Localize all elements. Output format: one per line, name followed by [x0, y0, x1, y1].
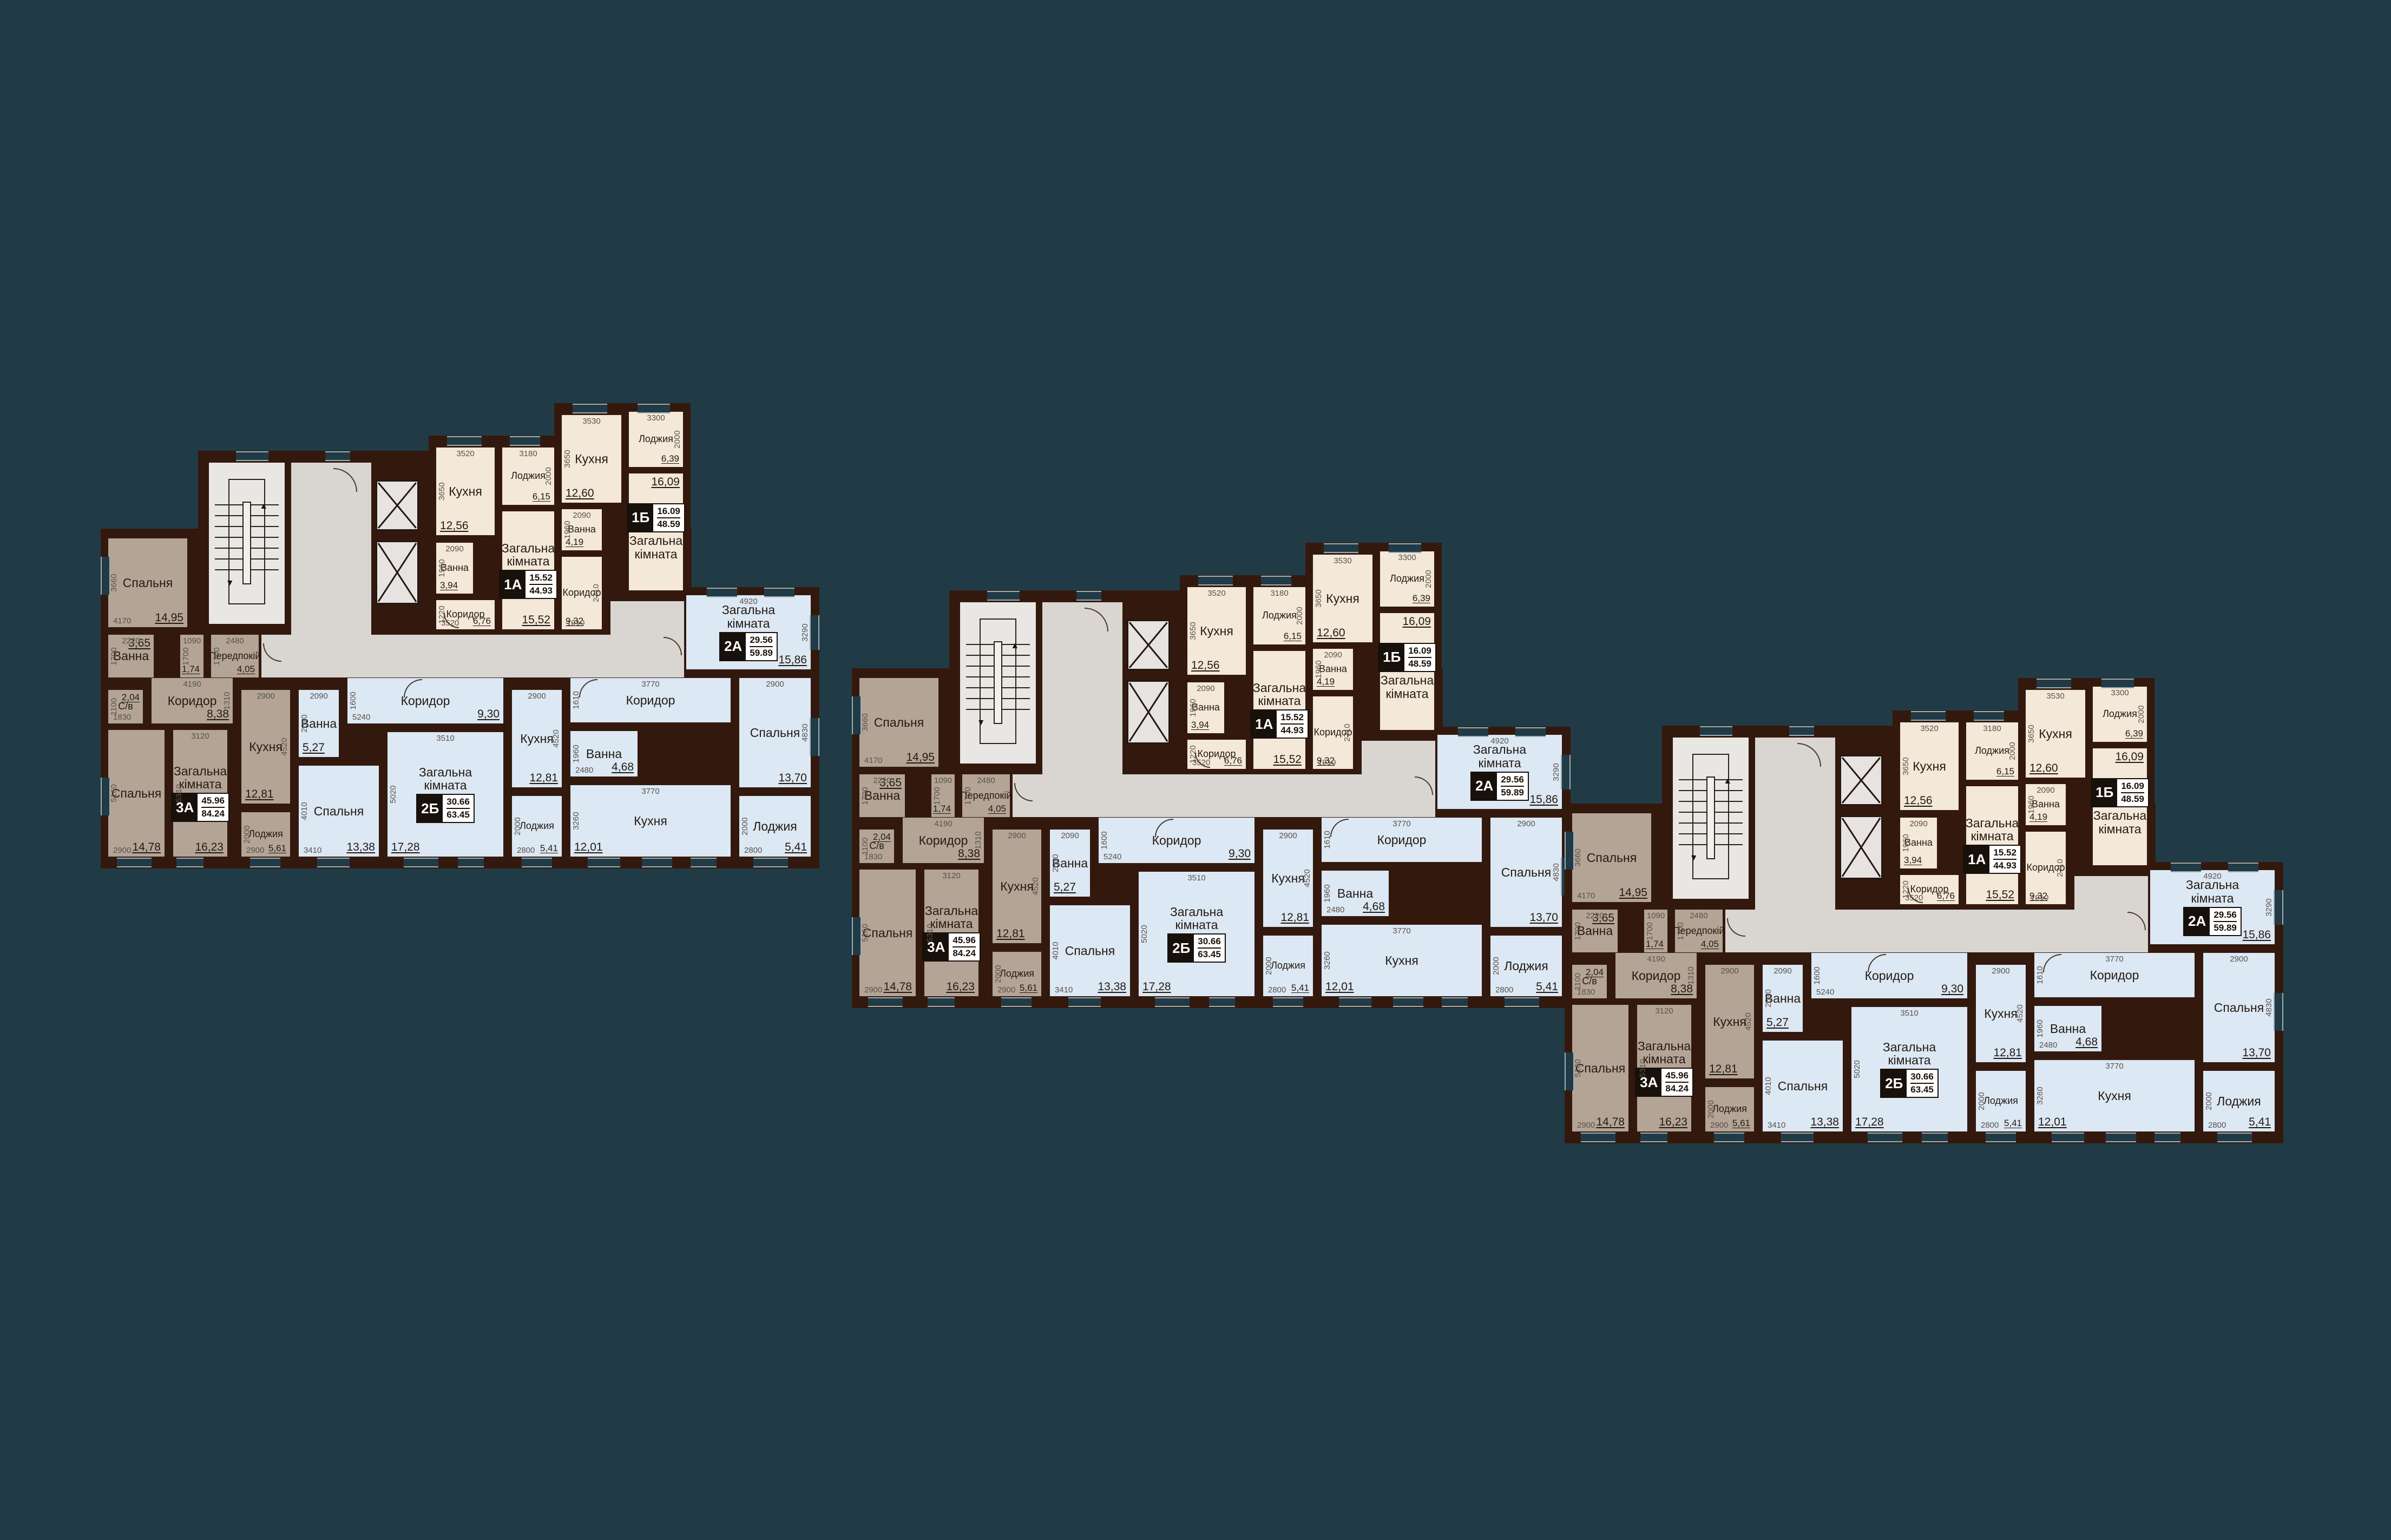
room-apt2b-living-room: Загальна кімната2Б30.6663.4517,283510502…: [387, 732, 503, 857]
room-label: Лоджия: [1000, 969, 1034, 979]
room-apt3a-kitchen: Кухня12,8129004520: [1705, 965, 1754, 1078]
room-apt3a-loggia: Лоджия5,6120002900: [1705, 1087, 1754, 1131]
dimension-label: 3770: [2105, 955, 2123, 963]
dimension-label: 1700: [110, 647, 118, 665]
room-apt1b-living-room: 1Б16.0948.59Загальна кімната16,09: [1380, 613, 1434, 730]
total-area-value: 59.89: [2213, 922, 2237, 934]
dimension-label: 5310: [926, 924, 934, 942]
room-elevator-shaft-1: [1840, 755, 1883, 806]
dimension-label: 2000: [544, 467, 553, 485]
room-apt2a-loggia: Лоджия5,4120002800: [2203, 1071, 2275, 1131]
room-label: Лоджия: [511, 471, 546, 481]
room-apt3a-bedroom-2: Спальня14,7851602900: [1572, 1005, 1628, 1131]
dimension-label: 3650: [438, 482, 446, 500]
window: [1324, 543, 1358, 553]
dimension-label: 2900: [246, 846, 264, 854]
dimension-label: 2900: [766, 680, 784, 688]
dimension-label: 1910: [1318, 759, 1336, 767]
apartment-type: 1Б: [2092, 779, 2117, 806]
room-label: Кухня: [1000, 880, 1034, 893]
room-area-value: 13,38: [1098, 980, 1126, 993]
apartment-badge-2А: 2А29.5659.89: [2183, 907, 2242, 936]
window: [707, 588, 737, 597]
window: [1581, 1133, 1615, 1142]
total-area-value: 44.93: [1993, 860, 2016, 872]
dimension-label: 2900: [2230, 955, 2248, 963]
dimension-label: 1960: [572, 745, 580, 762]
room-label: Кухня: [1200, 624, 1233, 638]
room-area-value: 5,41: [540, 843, 558, 854]
room-apt1b-kitchen: Кухня12,6035303650: [1313, 555, 1372, 642]
room-label: Лоджия: [1983, 1096, 2018, 1106]
room-label: Коридор: [168, 694, 217, 708]
room-label: Ванна: [586, 747, 622, 761]
room-area-value: 5,41: [1536, 980, 1558, 993]
window: [325, 451, 350, 461]
dimension-label: 5240: [352, 713, 370, 721]
dimension-label: 3120: [1655, 1007, 1673, 1015]
apartment-areas: 45.9684.24: [198, 794, 228, 821]
dimension-label: 3520: [456, 450, 474, 458]
dimension-label: 2610: [1764, 989, 1772, 1007]
dimension-label: 2710: [1343, 723, 1351, 741]
room-area-value: 13,70: [778, 772, 807, 785]
room-apt2a-bathroom: Ванна4,6819602480: [570, 731, 638, 776]
room-area-value: 5,61: [1020, 983, 1037, 993]
dimension-label: 2900: [1517, 820, 1535, 828]
room-label: Кухня: [1271, 872, 1305, 885]
room-apt3a-wc: С/в2,0411001830: [1572, 965, 1607, 998]
dimension-label: 3650: [1902, 757, 1910, 775]
dimension-label: 2900: [1710, 1121, 1728, 1129]
apartment-badge-2Б: 2Б30.6663.45: [416, 794, 475, 823]
room-area-value: 13,70: [2242, 1047, 2271, 1059]
room-area-value: 5,27: [1766, 1016, 1789, 1029]
room-apt2a-living-room: Загальна кімната2А29.5659.8915,864920329…: [1437, 735, 1562, 809]
window: [1911, 711, 1946, 721]
window: [2171, 863, 2201, 872]
room-label: Загальна кімната: [1381, 674, 1434, 701]
dimension-label: 2090: [1324, 651, 1342, 659]
dimension-label: 4520: [280, 738, 288, 755]
living-area-value: 16.09: [657, 505, 680, 518]
room-area-value: 14,95: [906, 751, 935, 764]
window: [522, 858, 552, 867]
total-area-value: 44.93: [529, 585, 553, 597]
room-apt3a-living-room: Загальна кімната3А45.9684.2416,233120531…: [173, 730, 227, 857]
apartment-areas: 16.0948.59: [2117, 779, 2148, 806]
dimension-label: 5310: [175, 784, 183, 802]
dimension-label: 1910: [567, 619, 584, 627]
living-area-value: 29.56: [750, 634, 773, 647]
room-area-value: 13,38: [1810, 1116, 1839, 1129]
dimension-label: 3510: [1900, 1009, 1918, 1017]
dimension-label: 3660: [110, 574, 118, 591]
window: [764, 588, 794, 597]
room-apt1b-kitchen: Кухня12,6035303650: [562, 415, 621, 503]
window: [510, 436, 540, 446]
dimension-label: 2480: [575, 766, 593, 774]
dimension-label: 3650: [563, 450, 572, 468]
window: [2217, 1133, 2252, 1142]
room-label: Ванна: [1337, 887, 1373, 900]
apartment-type: 1Б: [1379, 644, 1404, 671]
dimension-label: 5310: [1639, 1059, 1647, 1077]
dimension-label: 3180: [1983, 725, 2001, 733]
room-apt1a-kitchen: Кухня12,5635203650: [1900, 722, 1959, 810]
dimension-label: 4520: [552, 729, 560, 747]
total-area-value: 63.45: [1198, 949, 1221, 960]
dimension-label: 3410: [304, 846, 321, 854]
room-label: Кухня: [520, 732, 554, 746]
room-area-value: 13,38: [346, 841, 375, 854]
total-area-value: 44.93: [1280, 725, 1304, 736]
room-apt3a-corridor: Коридор8,3841901310: [152, 678, 233, 723]
room-area-value: 16,09: [2115, 751, 2144, 764]
room-apt1a-bathroom: Ванна3,9420901960: [1187, 682, 1224, 733]
dimension-label: 2000: [1707, 1100, 1715, 1118]
window: [101, 557, 110, 595]
apartment-type: 2Б: [1881, 1070, 1907, 1097]
room-label: Загальна кімната: [1170, 905, 1223, 932]
room-area-value: 15,52: [1273, 753, 1302, 766]
dimension-label: 2480: [226, 637, 244, 645]
room-label: Спальня: [863, 926, 912, 940]
room-label: Кухня: [1713, 1015, 1746, 1029]
room-apt2a-loggia: Лоджия5,4120002800: [1490, 936, 1562, 996]
apartment-areas: 29.5659.89: [2210, 908, 2241, 935]
room-apt2b-bathroom: Ванна5,2720902610: [1763, 965, 1803, 1032]
room-label: Загальна кімната: [2093, 809, 2146, 836]
dimension-label: 3180: [519, 450, 537, 458]
window: [1209, 997, 1235, 1007]
room-area-value: 12,81: [529, 772, 558, 785]
dimension-label: 2900: [257, 692, 274, 700]
dimension-label: 2900: [1992, 967, 2009, 975]
dimension-label: 2900: [1279, 832, 1297, 840]
window: [1565, 832, 1574, 870]
dimension-label: 3650: [1189, 622, 1197, 640]
dimension-label: 2090: [2037, 786, 2054, 794]
room-apt1b-bathroom: Ванна4,1920901960: [562, 509, 602, 550]
total-area-value: 84.24: [953, 947, 976, 959]
window: [1273, 997, 1303, 1007]
room-label: Лоджия: [639, 434, 673, 444]
room-label: Спальня: [1065, 944, 1115, 958]
dimension-label: 3300: [647, 414, 665, 422]
room-apt3a-loggia: Лоджия5,6120002900: [993, 952, 1041, 996]
window: [117, 858, 152, 867]
room-label: Кухня: [575, 452, 608, 466]
window: [691, 858, 717, 867]
dimension-label: 1960: [1189, 699, 1197, 716]
living-area-value: 16.09: [2121, 780, 2144, 793]
room-apt2b-kitchen: Кухня12,8129004520: [1976, 965, 2026, 1062]
room-area-value: 16,23: [195, 841, 224, 854]
room-apt2b-loggia: Лоджия5,4120002800: [1976, 1071, 2026, 1131]
dimension-label: 4920: [1490, 737, 1508, 745]
window: [1986, 1133, 2016, 1142]
window: [1393, 997, 1423, 1007]
apartment-badge-2Б: 2Б30.6663.45: [1167, 933, 1226, 963]
room-apt1a-living-room: Загальна кімната1А15.5244.9315,52: [1253, 651, 1305, 769]
room-label: С/в: [869, 841, 884, 851]
dimension-label: 3290: [801, 623, 809, 641]
dimension-label: 1960: [1315, 660, 1323, 678]
total-area-value: 48.59: [657, 518, 680, 530]
room-apt3a-living-room: Загальна кімната3А45.9684.2416,233120531…: [924, 870, 978, 996]
dimension-label: 5160: [110, 784, 118, 802]
room-area-value: 12,56: [1904, 794, 1933, 807]
dimension-label: 3530: [2046, 692, 2064, 700]
window: [2037, 679, 2071, 688]
dimension-label: 2480: [1326, 906, 1344, 914]
room-label: Спальня: [1501, 866, 1551, 879]
dimension-label: 3290: [2265, 898, 2273, 916]
dimension-label: 1700: [182, 647, 190, 665]
dimension-label: 5020: [1853, 1060, 1861, 1078]
dimension-label: 3260: [572, 812, 580, 830]
room-apt1b-corridor: Коридор9,3227101910: [2026, 832, 2066, 904]
room-apt2a-kitchen: Кухня12,0137703260: [570, 785, 731, 857]
apartment-badge-2А: 2А29.5659.89: [719, 632, 778, 661]
room-area-value: 15,52: [1986, 889, 2014, 901]
dimension-label: 2000: [1424, 570, 1433, 588]
dimension-label: 4520: [1744, 1012, 1752, 1030]
room-apt2b-bedroom: Спальня13,3840103410: [1050, 905, 1130, 996]
room-label: Лоджия: [1390, 574, 1424, 584]
room-label: Кухня: [1326, 592, 1359, 606]
room-area-value: 15,86: [778, 654, 807, 667]
window: [852, 696, 862, 734]
dimension-label: 3770: [641, 680, 659, 688]
room-label: Спальня: [2214, 1001, 2264, 1015]
window: [2052, 1133, 2084, 1142]
dimension-label: 2000: [2137, 705, 2145, 723]
dimension-label: 2220: [1586, 912, 1604, 920]
room-area-value: 5,61: [268, 843, 286, 854]
room-area-value: 16,09: [651, 476, 680, 489]
room-label: Коридор: [919, 834, 968, 847]
room-apt2b-corridor: Коридор9,3016005240: [1811, 953, 1967, 998]
window: [404, 858, 438, 867]
room-label: Кухня: [249, 740, 283, 754]
apartment-type: 1А: [500, 571, 526, 598]
dimension-label: 3180: [1270, 589, 1288, 597]
room-label: Спальня: [314, 805, 364, 818]
room-common-corridor-east: [610, 601, 684, 635]
room-apt1a-kitchen: Кухня12,5635203650: [1187, 587, 1246, 675]
dimension-label: 2900: [528, 692, 546, 700]
room-area-value: 6,15: [533, 491, 550, 502]
room-apt3a-bathroom: Ванна3,6522201700: [1572, 910, 1618, 952]
living-area-value: 15.52: [1993, 847, 2016, 860]
room-apt3a-bathroom: Ванна3,6522201700: [108, 635, 154, 677]
room-apt1a-kitchen: Кухня12,5635203650: [436, 447, 495, 535]
building-section-1: ▲▼Спальня14,9536604170Ванна3,65222017001…: [101, 399, 819, 880]
dimension-label: 3660: [1574, 848, 1582, 866]
room-area-value: 12,01: [574, 841, 603, 854]
room-area-value: 12,56: [440, 519, 469, 532]
apartment-areas: 45.9684.24: [1661, 1069, 1692, 1096]
room-area-value: 6,76: [1224, 755, 1242, 766]
room-apt1b-loggia: Лоджия6,3933002000: [2093, 687, 2147, 742]
room-apt2b-loggia: Лоджия5,4120002800: [512, 796, 562, 857]
room-area-value: 3,94: [1904, 855, 1922, 866]
room-label: Спальня: [750, 726, 800, 740]
window: [642, 858, 672, 867]
room-area-value: 6,76: [1937, 891, 1955, 901]
total-area-value: 84.24: [1665, 1083, 1689, 1095]
window: [1001, 997, 1032, 1007]
dimension-label: 1090: [183, 637, 201, 645]
room-apt3a-bedroom-1: Спальня14,9536604170: [1572, 813, 1651, 902]
room-area-value: 15,86: [1529, 793, 1558, 806]
dimension-label: 1830: [864, 853, 882, 861]
room-stairwell: ▲▼: [960, 602, 1036, 764]
room-area-value: 12,60: [566, 487, 594, 500]
dimension-label: 3530: [582, 417, 600, 425]
room-area-value: 14,78: [1596, 1116, 1625, 1129]
room-apt2b-loggia: Лоджия5,4120002800: [1263, 936, 1313, 996]
dimension-label: 2800: [1981, 1121, 1999, 1129]
room-apt2a-kitchen: Кухня12,0137703260: [2034, 1060, 2195, 1131]
dimension-label: 3530: [1334, 557, 1351, 565]
dimension-label: 2610: [300, 714, 308, 732]
room-area-value: 6,39: [661, 453, 679, 464]
room-label: Лоджия: [2103, 709, 2137, 719]
total-area-value: 48.59: [1408, 658, 1431, 670]
dimension-label: 3650: [1315, 589, 1323, 607]
dimension-label: 3260: [2036, 1087, 2044, 1104]
room-apt1b-loggia: Лоджия6,3933002000: [629, 412, 683, 467]
dimension-label: 5160: [861, 924, 869, 942]
room-elevator-shaft-1: [376, 480, 419, 531]
apartment-type: 2Б: [1168, 934, 1194, 962]
window: [2228, 863, 2258, 872]
window: [2274, 890, 2283, 925]
dimension-label: 2090: [445, 545, 463, 553]
living-area-value: 45.96: [953, 934, 976, 947]
room-area-value: 16,23: [1659, 1116, 1687, 1129]
total-area-value: 59.89: [1501, 787, 1524, 799]
window: [1198, 576, 1233, 585]
room-area-value: 12,60: [2029, 762, 2058, 775]
room-area-value: 3,94: [1191, 720, 1209, 730]
dimension-label: 3260: [1323, 951, 1331, 969]
room-label: Лоджия: [520, 821, 554, 831]
window: [753, 858, 788, 867]
window: [1922, 1133, 1948, 1142]
dimension-label: 1600: [349, 692, 357, 709]
room-elevator-shaft-2: [1127, 680, 1170, 744]
room-area-value: 17,28: [1855, 1116, 1884, 1129]
room-label: Загальна кімната: [1473, 743, 1526, 770]
window: [1868, 1133, 1902, 1142]
window: [1155, 997, 1190, 1007]
room-area-value: 5,41: [1291, 983, 1309, 993]
room-apt1b-kitchen: Кухня12,6035303650: [2026, 690, 2085, 778]
room-area-value: 12,81: [1993, 1047, 2022, 1059]
room-label: Кухня: [1385, 954, 1418, 968]
room-area-value: 4,68: [1363, 900, 1385, 913]
window: [1458, 727, 1488, 737]
dimension-label: 3660: [861, 713, 869, 731]
room-label: Лоджия: [1712, 1104, 1747, 1114]
dimension-label: 3120: [191, 732, 209, 740]
room-label: Лоджия: [1975, 746, 2009, 756]
room-area-value: 4,05: [988, 804, 1006, 814]
apartment-areas: 30.6663.45: [443, 795, 474, 822]
dimension-label: 1310: [974, 831, 982, 849]
dimension-label: 2800: [2208, 1121, 2226, 1129]
room-area-value: 1,74: [1646, 939, 1664, 950]
room-label: Кухня: [2039, 727, 2072, 741]
living-area-value: 45.96: [1665, 1070, 1689, 1083]
dimension-label: 1600: [1813, 966, 1821, 984]
room-elevator-shaft-1: [1127, 620, 1170, 670]
dimension-label: 2090: [310, 692, 327, 700]
dimension-label: 4520: [1303, 869, 1311, 887]
room-apt1a-loggia: Лоджия6,1531802000: [1966, 722, 2018, 780]
window: [852, 917, 862, 955]
apartment-areas: 30.6663.45: [1907, 1070, 1937, 1097]
window: [447, 436, 482, 446]
room-area-value: 4,05: [237, 664, 255, 675]
room-area-value: 1,74: [933, 804, 951, 814]
window: [101, 778, 110, 815]
apartment-areas: 15.5244.93: [1989, 846, 2020, 873]
room-area-value: 3,94: [440, 580, 458, 591]
apartment-areas: 29.5659.89: [1497, 773, 1528, 800]
room-label: С/в: [118, 701, 133, 712]
apartment-type: 2Б: [417, 795, 443, 822]
living-area-value: 16.09: [1408, 645, 1431, 658]
room-area-value: 2,04: [1586, 967, 1604, 978]
room-area-value: 12,01: [1325, 980, 1354, 993]
room-apt3a-bedroom-1: Спальня14,9536604170: [859, 678, 938, 767]
stair-stringer: [994, 641, 1002, 724]
room-apt1b-loggia: Лоджия6,3933002000: [1380, 551, 1434, 607]
dimension-label: 2800: [744, 846, 762, 854]
dimension-label: 1960: [2036, 1019, 2044, 1037]
room-label: Коридор: [1632, 969, 1681, 983]
room-apt3a-bedroom-2: Спальня14,7851602900: [859, 870, 916, 996]
living-area-value: 30.66: [1910, 1071, 1934, 1084]
dimension-label: 4830: [801, 723, 809, 741]
dimension-label: 1090: [1647, 912, 1665, 920]
dimension-label: 3300: [1398, 554, 1416, 562]
dimension-label: 2090: [1773, 967, 1791, 975]
dimension-label: 4190: [183, 680, 201, 688]
total-area-value: 48.59: [2121, 793, 2144, 805]
room-label: Лоджия: [753, 820, 797, 833]
room-apt2b-corridor: Коридор9,3016005240: [1099, 818, 1254, 863]
dimension-label: 3120: [942, 872, 960, 880]
room-label: Коридор: [2090, 969, 2139, 982]
window: [573, 404, 607, 413]
room-apt1a-loggia: Лоджия6,1531802000: [502, 447, 554, 505]
room-area-value: 5,61: [1732, 1118, 1750, 1129]
dimension-label: 2000: [1265, 957, 1273, 975]
dimension-label: 2900: [864, 986, 882, 994]
window: [458, 858, 484, 867]
window: [928, 997, 955, 1007]
living-area-value: 45.96: [201, 795, 225, 808]
dimension-label: 2710: [2056, 859, 2064, 877]
room-apt2a-kitchen: Кухня12,0137703260: [1322, 925, 1482, 996]
dimension-label: 2900: [997, 986, 1015, 994]
